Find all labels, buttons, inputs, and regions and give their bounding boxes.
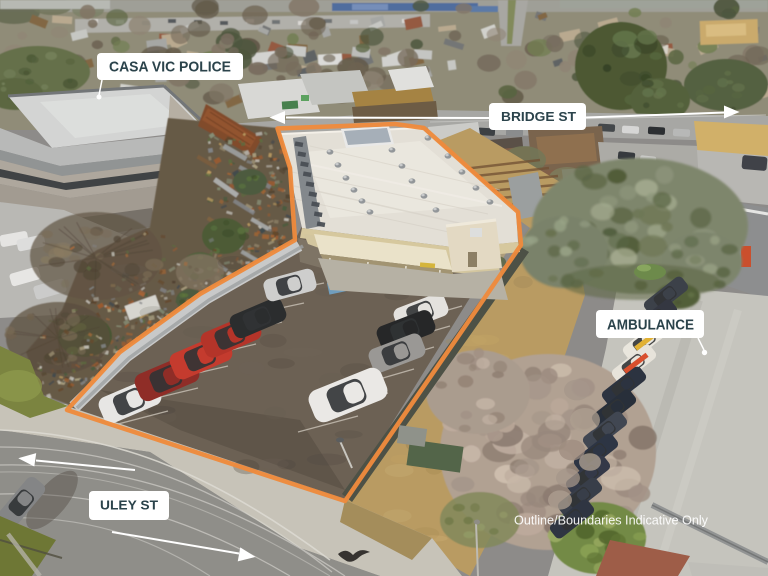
svg-text:Outline/Boundaries Indicative: Outline/Boundaries Indicative Only [514,514,709,528]
svg-text:AMBULANCE: AMBULANCE [607,318,694,334]
svg-text:ULEY ST: ULEY ST [100,499,158,513]
svg-text:CASA VIC POLICE: CASA VIC POLICE [109,59,231,76]
svg-text:BRIDGE ST: BRIDGE ST [501,109,576,124]
